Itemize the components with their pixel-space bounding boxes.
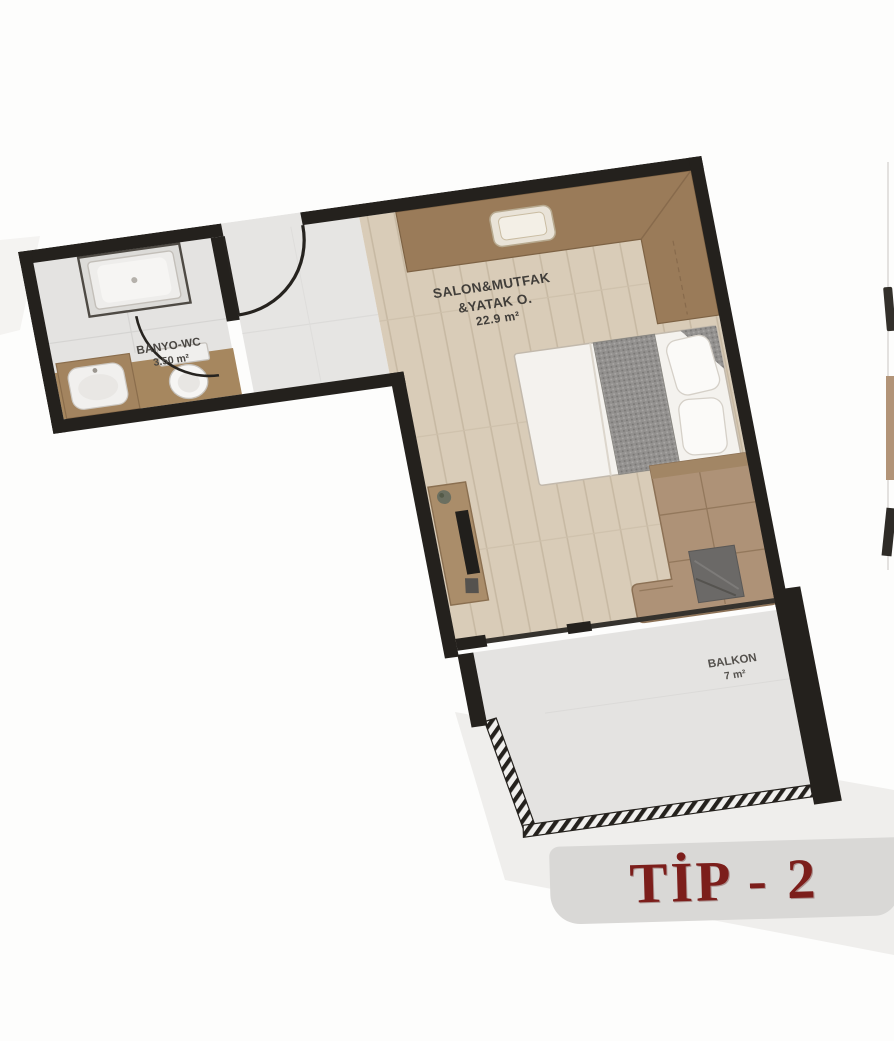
neighbor-plan-floor-fragment: [886, 376, 894, 480]
floor-plan-page: { "plan": { "type_label": "TİP - 2", "ro…: [0, 0, 894, 1041]
neighbor-plan-wall-fragment: [882, 508, 894, 557]
floor-plan-svg: [18, 152, 861, 921]
bed-pillow: [678, 397, 729, 456]
shower: [78, 243, 190, 316]
apartment-floor-plan: SALON&MUTFAK &YATAK O. 22.9 m² BANYO-WC …: [18, 152, 861, 921]
bathroom-sink: [56, 353, 140, 418]
type-label-band: TİP - 2: [549, 837, 894, 925]
type-label: TİP - 2: [629, 846, 820, 916]
neighbor-plan-wall-fragment: [883, 287, 894, 332]
